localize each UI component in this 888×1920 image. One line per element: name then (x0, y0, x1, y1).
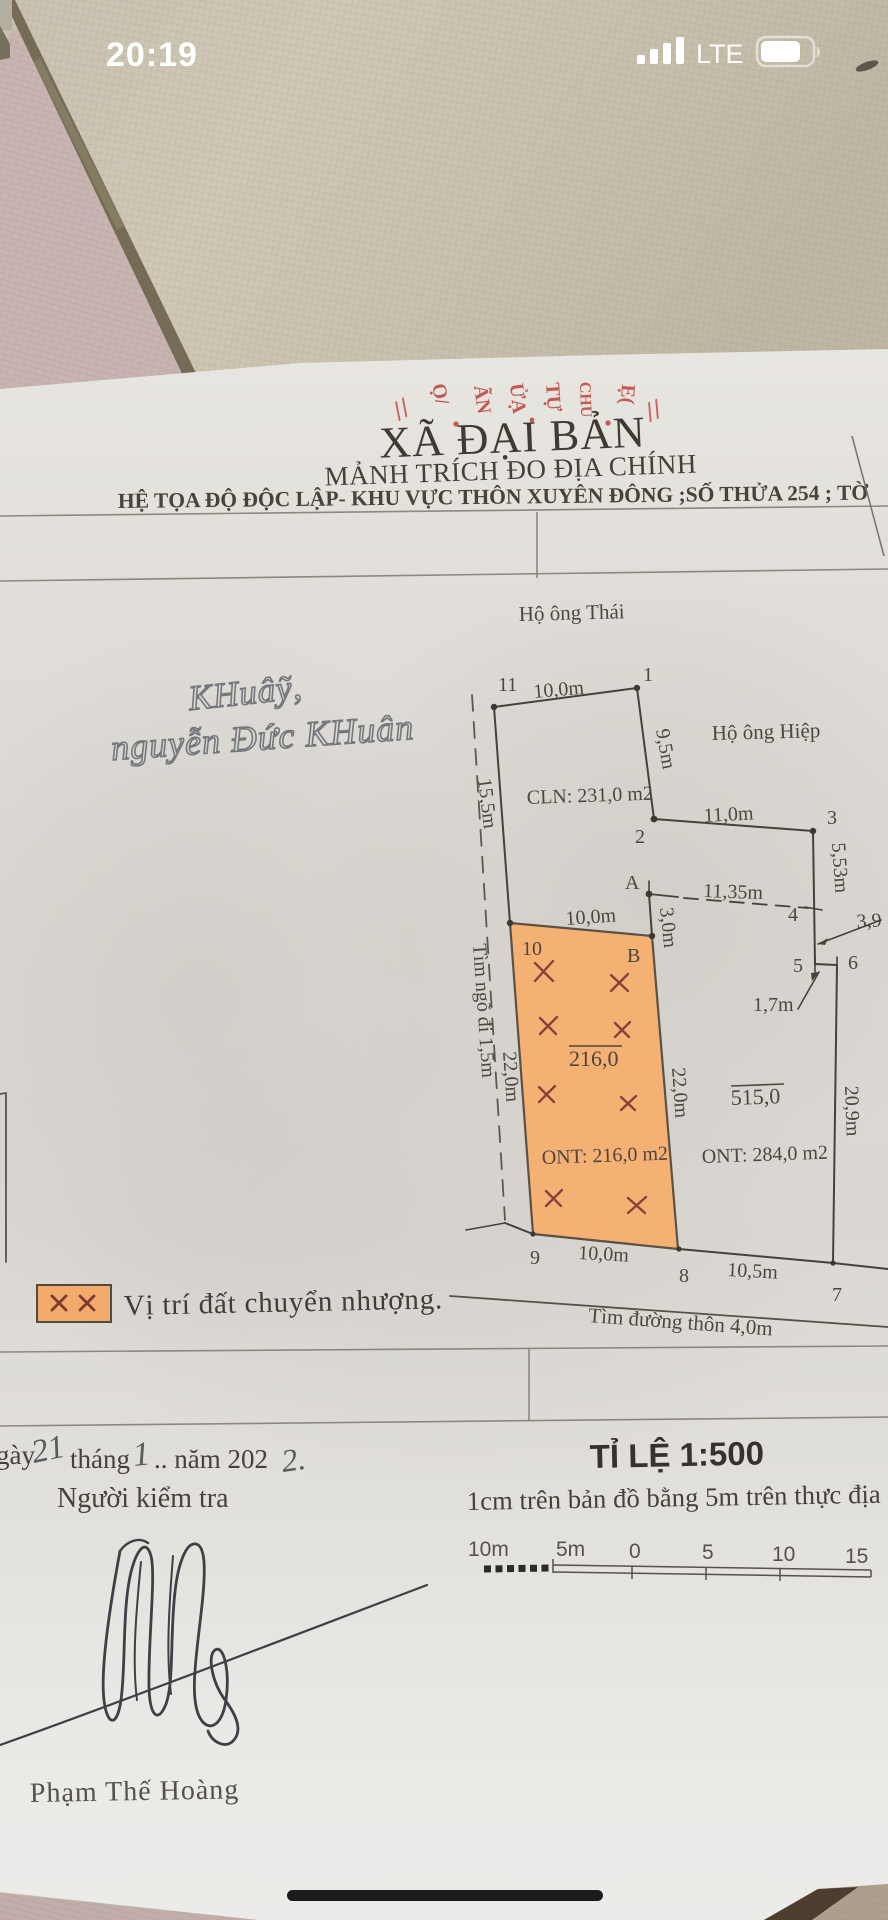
svg-text:7: 7 (832, 1284, 842, 1306)
svg-text:5: 5 (793, 955, 803, 977)
svg-text:LTE: LTE (696, 39, 744, 69)
svg-text:10m: 10m (468, 1538, 509, 1561)
svg-text:10: 10 (522, 938, 542, 960)
svg-text:515,0: 515,0 (730, 1083, 780, 1110)
svg-text:1: 1 (643, 664, 653, 686)
svg-text:TỰ: TỰ (541, 382, 565, 413)
svg-text:Ẹ(: Ẹ( (616, 384, 639, 406)
svg-text:Vị trí đất chuyển nhượng.: Vị trí đất chuyển nhượng. (123, 1283, 443, 1322)
svg-text:216,0: 216,0 (569, 1046, 619, 1071)
svg-text:6: 6 (848, 952, 858, 974)
svg-text:5m: 5m (556, 1538, 585, 1561)
svg-text:22,0m: 22,0m (667, 1067, 693, 1119)
svg-text:Phạm Thế Hoàng: Phạm Thế Hoàng (30, 1774, 240, 1809)
svg-text:ONT: 216,0 m2: ONT: 216,0 m2 (541, 1143, 668, 1169)
svg-text:tháng: tháng (70, 1444, 130, 1474)
svg-text:ONT: 284,0 m2: ONT: 284,0 m2 (701, 1142, 828, 1168)
svg-text:ỬẠ: ỬẠ (505, 382, 531, 415)
svg-text:11: 11 (498, 674, 517, 696)
svg-text:10,5m: 10,5m (727, 1259, 779, 1284)
svg-text:20,9m: 20,9m (840, 1085, 864, 1137)
svg-text:0: 0 (629, 1540, 641, 1563)
svg-text:8: 8 (679, 1265, 689, 1287)
svg-text:CLN: 231,0 m2: CLN: 231,0 m2 (526, 783, 653, 809)
svg-text:TỈ LỆ 1:500: TỈ LỆ 1:500 (589, 1434, 764, 1475)
svg-text:5: 5 (702, 1541, 714, 1564)
svg-text:11,0m: 11,0m (703, 802, 754, 827)
svg-text:2.: 2. (279, 1440, 308, 1479)
svg-text:3: 3 (827, 807, 837, 829)
svg-text:B: B (627, 945, 640, 967)
svg-text:A: A (625, 872, 640, 894)
svg-text:5,53m: 5,53m (827, 842, 853, 894)
svg-text:Người kiểm tra: Người kiểm tra (57, 1483, 229, 1514)
svg-text:1,7m: 1,7m (753, 994, 794, 1016)
svg-text:ÃN: ÃN (469, 383, 496, 415)
svg-text:22,0m: 22,0m (498, 1051, 524, 1103)
svg-text:2: 2 (635, 826, 645, 848)
svg-text:3,0m: 3,0m (655, 906, 681, 949)
svg-text:20:19: 20:19 (106, 36, 198, 74)
svg-text:Hộ ông Thái: Hộ ông Thái (519, 599, 626, 626)
svg-text:Hộ ông Hiệp: Hộ ông Hiệp (712, 718, 821, 745)
svg-text:10,0m: 10,0m (533, 677, 586, 703)
svg-text:9: 9 (530, 1247, 540, 1269)
svg-text:10,0m: 10,0m (578, 1242, 630, 1267)
svg-text:4: 4 (788, 904, 798, 926)
svg-text:3,9: 3,9 (856, 909, 882, 933)
svg-text:10,0m: 10,0m (565, 904, 617, 930)
svg-text:15: 15 (845, 1545, 868, 1568)
svg-text:10: 10 (772, 1543, 795, 1566)
svg-text:.. năm 202: .. năm 202 (154, 1444, 268, 1474)
svg-text:11,35m: 11,35m (703, 880, 764, 904)
